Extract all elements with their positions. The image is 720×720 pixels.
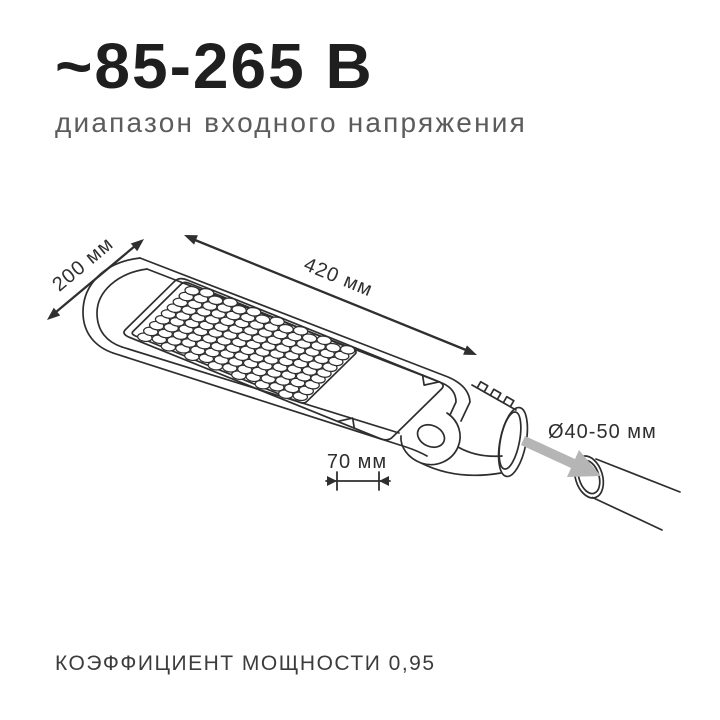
lamp-diagram: 200 мм 420 мм 70 мм Ø40-50 мм [0, 0, 720, 720]
arm-mid-line [458, 447, 502, 456]
dim-bracket-arrowhead-right [379, 476, 389, 486]
dim-length-label: 420 мм [301, 254, 376, 302]
dim-width: 200 мм [47, 233, 144, 320]
dim-bracket-arrowhead-left [327, 476, 337, 486]
arm-knuckle-inner [414, 421, 448, 452]
mounting-arm [401, 382, 533, 479]
dim-length-arrowhead-left [184, 235, 198, 245]
dim-width-arrowhead-top [131, 239, 144, 251]
power-factor-text: КОЭФФИЦИЕНТ МОЩНОСТИ 0,95 [55, 652, 436, 676]
dim-length-arrowhead-right [463, 345, 477, 355]
pole-bottom-line [593, 498, 663, 531]
pole-diameter-label: Ø40-50 мм [548, 421, 657, 443]
dim-bracket-label: 70 мм [327, 451, 387, 473]
pole-top-line [596, 459, 680, 492]
dim-bracket: 70 мм [326, 451, 390, 490]
lamp-glass-panel [121, 277, 446, 442]
